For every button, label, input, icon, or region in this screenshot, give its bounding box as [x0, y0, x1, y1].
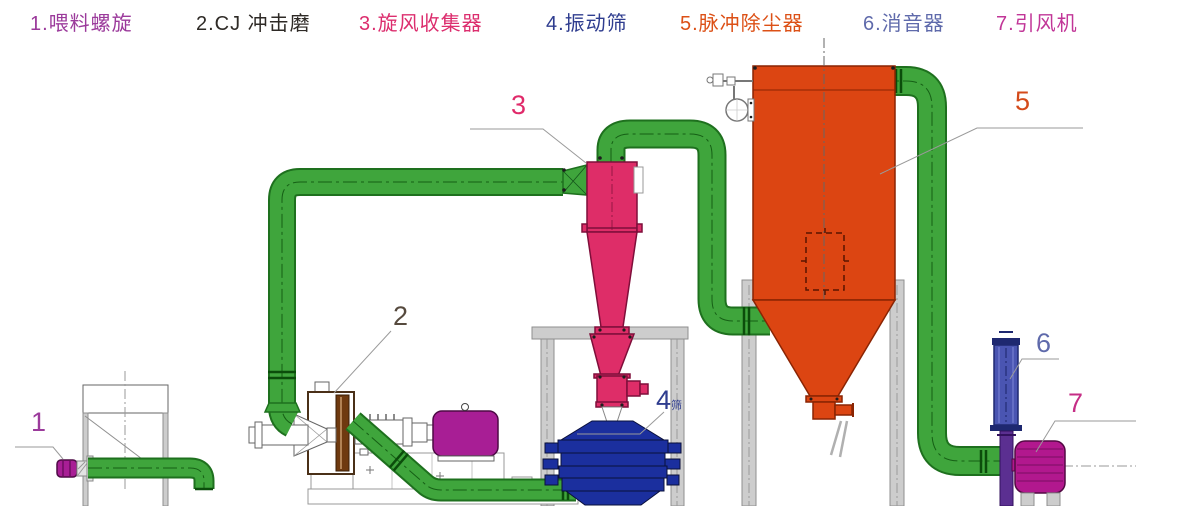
- mill-pedestal: [311, 473, 353, 489]
- motor-shaft-flange: [427, 425, 433, 440]
- cyclone-inspection-door: [634, 167, 643, 193]
- muffler-bottom-flange: [990, 425, 1022, 431]
- frame-clamp-1: [360, 449, 368, 455]
- valve-drive-motor: [640, 384, 648, 394]
- screen-tab-l3: [545, 475, 558, 485]
- riser-discharge-skirt: [265, 403, 300, 412]
- cyclone-lower-funnel: [590, 334, 634, 376]
- rotary-airlock-valve: [597, 376, 627, 403]
- mill-motor: [433, 411, 498, 456]
- motor-base: [438, 456, 494, 461]
- ring-tab-left: [582, 224, 587, 232]
- valve-bolt-4: [620, 403, 623, 406]
- valve-bolt-3: [600, 403, 603, 406]
- valve-bolt-2: [622, 375, 625, 378]
- left-shaft-flange: [255, 422, 262, 448]
- leader-5: [880, 128, 1083, 174]
- screen-deck-2: [561, 453, 665, 466]
- diagram-drawing: [0, 0, 1189, 506]
- cyclone-collector: [582, 162, 648, 422]
- mount-bolt-a: [750, 102, 753, 105]
- feed-hopper: [83, 371, 168, 506]
- legend-item-fan: 7.引风机: [996, 7, 1078, 36]
- screen-deck-3: [559, 466, 667, 478]
- feed-screw-motor: [57, 460, 77, 477]
- callout-6: 6: [1036, 330, 1051, 357]
- process-flow-diagram: 1.喂料螺旋 2.CJ 冲击磨 3.旋风收集器 4.振动筛 5.脉冲除尘器 6.…: [0, 0, 1189, 506]
- leader-2: [334, 331, 391, 393]
- taper-bolt-top: [562, 168, 566, 172]
- induced-draft-fan: [997, 431, 1065, 506]
- pulse-gauge: [707, 77, 713, 83]
- legend-item-vibrating-screen: 4.振动筛: [546, 7, 628, 36]
- screen-bottom-skirt: [566, 491, 660, 505]
- valve-bolt-1: [598, 375, 601, 378]
- mount-bolt-b: [750, 116, 753, 119]
- ring-tab-right: [637, 224, 642, 232]
- funnel-bolt-r: [628, 335, 631, 338]
- muffler-top-flange: [992, 338, 1020, 345]
- callout-2: 2: [393, 303, 408, 330]
- screen-inlet-transition: [602, 407, 622, 422]
- cone-flange-bolt-l: [598, 328, 601, 331]
- taper-bolt-bottom: [562, 188, 566, 192]
- screen-deck-1: [558, 440, 668, 453]
- muffler: [990, 332, 1022, 431]
- discharge-bolt-l: [810, 398, 813, 401]
- body-bolt-right: [891, 66, 895, 70]
- cyclone-cone: [587, 232, 637, 327]
- callout-1: 1: [31, 409, 46, 436]
- pulse-fitting: [727, 77, 735, 85]
- stub-bolt-left: [598, 156, 602, 160]
- callout-3: 3: [511, 92, 526, 119]
- fan-outlet-duct: [1000, 431, 1013, 506]
- leader-3: [470, 129, 586, 163]
- mill-door-band: [336, 395, 349, 471]
- coupling-flange: [403, 418, 412, 446]
- mill-top-bracket: [315, 382, 329, 392]
- discharge-valve-body: [813, 402, 835, 419]
- hopper-diagonal-brace: [85, 416, 146, 462]
- stub-bolt-right: [620, 156, 624, 160]
- feed-screw-drive: [57, 456, 93, 481]
- fan-leg-left: [1021, 493, 1034, 506]
- screen-tab-l2: [543, 459, 558, 469]
- coupling-body: [412, 423, 427, 442]
- screen-top-cone: [561, 421, 664, 440]
- left-shaft-end: [249, 427, 255, 443]
- pulse-air-assembly: [707, 74, 754, 121]
- funnel-bolt-l: [592, 335, 595, 338]
- legend-item-muffler: 6.消音器: [863, 7, 945, 36]
- callout-4-number: 4: [656, 385, 671, 415]
- cone-flange-bolt-r: [622, 328, 625, 331]
- discharge-bolt-r: [836, 398, 839, 401]
- leader-1: [15, 447, 63, 459]
- screen-tab-r3: [667, 475, 679, 485]
- legend-item-cyclone: 3.旋风收集器: [359, 7, 483, 36]
- discharge-side-stub: [835, 405, 852, 415]
- pulse-dust-collector: [707, 38, 895, 457]
- callout-4-suffix: 筛: [671, 400, 682, 412]
- pulse-valve: [713, 74, 723, 86]
- legend-item-impact-mill: 2.CJ 冲击磨: [196, 7, 311, 36]
- rotor-hub: [327, 428, 336, 442]
- screen-deck-4: [562, 478, 664, 491]
- discharge-handle: [831, 421, 847, 457]
- callout-5: 5: [1015, 88, 1030, 115]
- collector-hopper-cone: [753, 300, 895, 396]
- motor-eye-bolt: [462, 404, 469, 411]
- callout-4: 4筛: [656, 387, 682, 414]
- body-bolt-left: [753, 66, 757, 70]
- callout-7: 7: [1068, 390, 1083, 417]
- screen-tab-l1: [545, 443, 558, 453]
- valve-drive: [627, 381, 640, 396]
- legend-item-pulse-collector: 5.脉冲除尘器: [680, 7, 804, 36]
- legend-item-feed-screw: 1.喂料螺旋: [30, 7, 133, 36]
- screen-tab-r1: [668, 443, 681, 453]
- fan-leg-right: [1047, 493, 1060, 506]
